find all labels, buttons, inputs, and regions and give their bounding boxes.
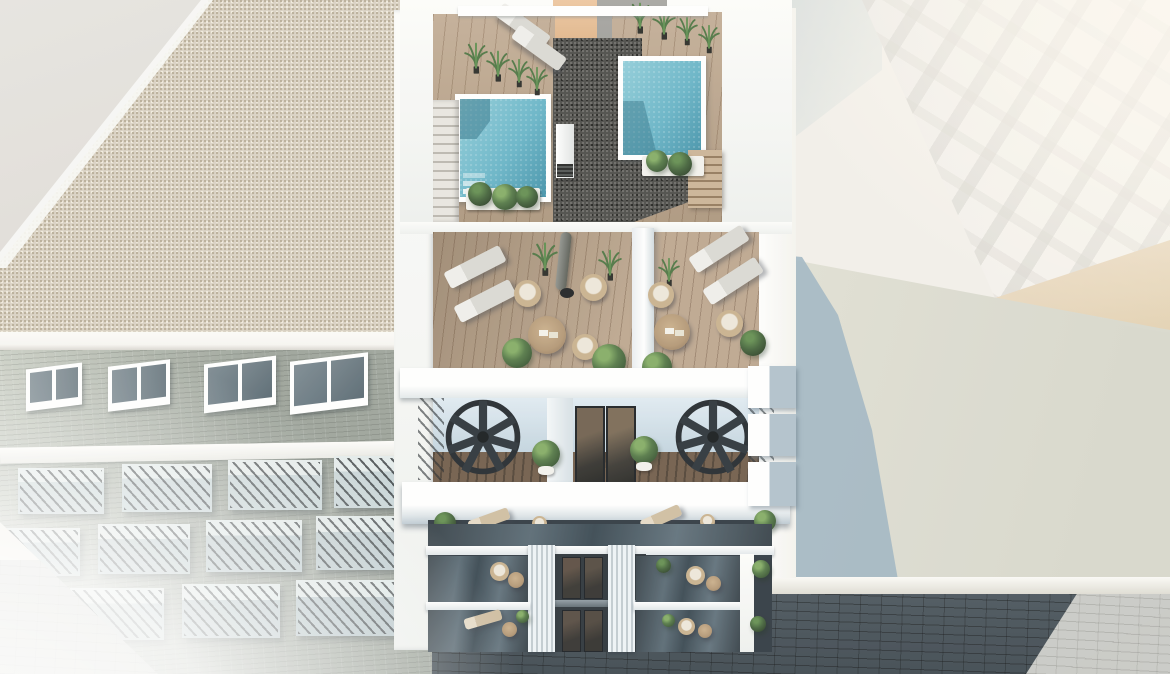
floor-slab <box>634 602 742 610</box>
balcony-table <box>706 576 721 591</box>
planter-shrub <box>646 150 668 172</box>
palm-plant <box>676 14 698 48</box>
potted-plant <box>532 440 560 468</box>
floor-slab <box>426 602 530 610</box>
glass-door <box>575 406 605 488</box>
recess-window <box>562 610 581 652</box>
main-building <box>0 0 1170 674</box>
potted-bush <box>740 330 766 356</box>
balcony-table <box>502 622 517 637</box>
spiral-staircase <box>672 390 754 484</box>
round-table <box>528 316 566 354</box>
balcony-plant <box>750 616 766 632</box>
recess-window <box>584 557 603 599</box>
planter-shrub <box>516 186 538 208</box>
vent-grille <box>557 164 573 177</box>
palm-plant <box>526 64 548 98</box>
balcony-table <box>698 624 712 638</box>
balcony-chair <box>490 562 509 581</box>
potted-plant <box>630 436 658 464</box>
palm-plant <box>532 238 558 280</box>
side-balcony <box>748 366 796 408</box>
spiral-staircase <box>442 390 524 484</box>
terrace-level <box>400 222 792 400</box>
palm-plant <box>698 22 720 56</box>
rooftop-parapet-top <box>458 6 708 16</box>
balcony-level <box>400 398 792 528</box>
recess-window <box>584 610 603 652</box>
plant-pot <box>538 466 554 475</box>
plant-pot <box>636 462 652 471</box>
balcony-glass-front <box>428 524 772 548</box>
planter-shrub <box>668 152 692 176</box>
balcony-plant <box>662 614 675 627</box>
left-concrete-stairs <box>433 100 459 222</box>
wicker-chair <box>580 274 607 301</box>
side-railing <box>418 398 444 480</box>
balcony-table <box>508 572 524 588</box>
balcony-front-parapet <box>402 482 790 524</box>
lower-floors <box>428 520 772 652</box>
round-table <box>654 314 690 350</box>
balcony-plant <box>516 610 529 623</box>
side-balcony <box>748 462 796 506</box>
parasol-base <box>560 288 574 298</box>
rooftop <box>400 0 792 222</box>
balcony-plant <box>752 560 770 578</box>
potted-bush <box>502 338 532 368</box>
planter-shrub <box>468 182 492 206</box>
balcony-plant <box>656 558 671 573</box>
architectural-render-canvas <box>0 0 1170 674</box>
white-fins <box>608 545 635 652</box>
balcony-chair <box>686 566 705 585</box>
recess-window <box>562 557 581 599</box>
side-balcony <box>748 414 796 456</box>
wicker-chair <box>648 282 674 308</box>
palm-plant <box>464 40 488 76</box>
palm-plant <box>486 48 510 84</box>
planter-shrub <box>492 184 518 210</box>
white-fins <box>528 545 555 652</box>
wicker-chair <box>716 310 743 337</box>
right-pool <box>618 56 706 160</box>
balcony-chair <box>678 618 695 635</box>
wicker-chair <box>514 280 541 307</box>
